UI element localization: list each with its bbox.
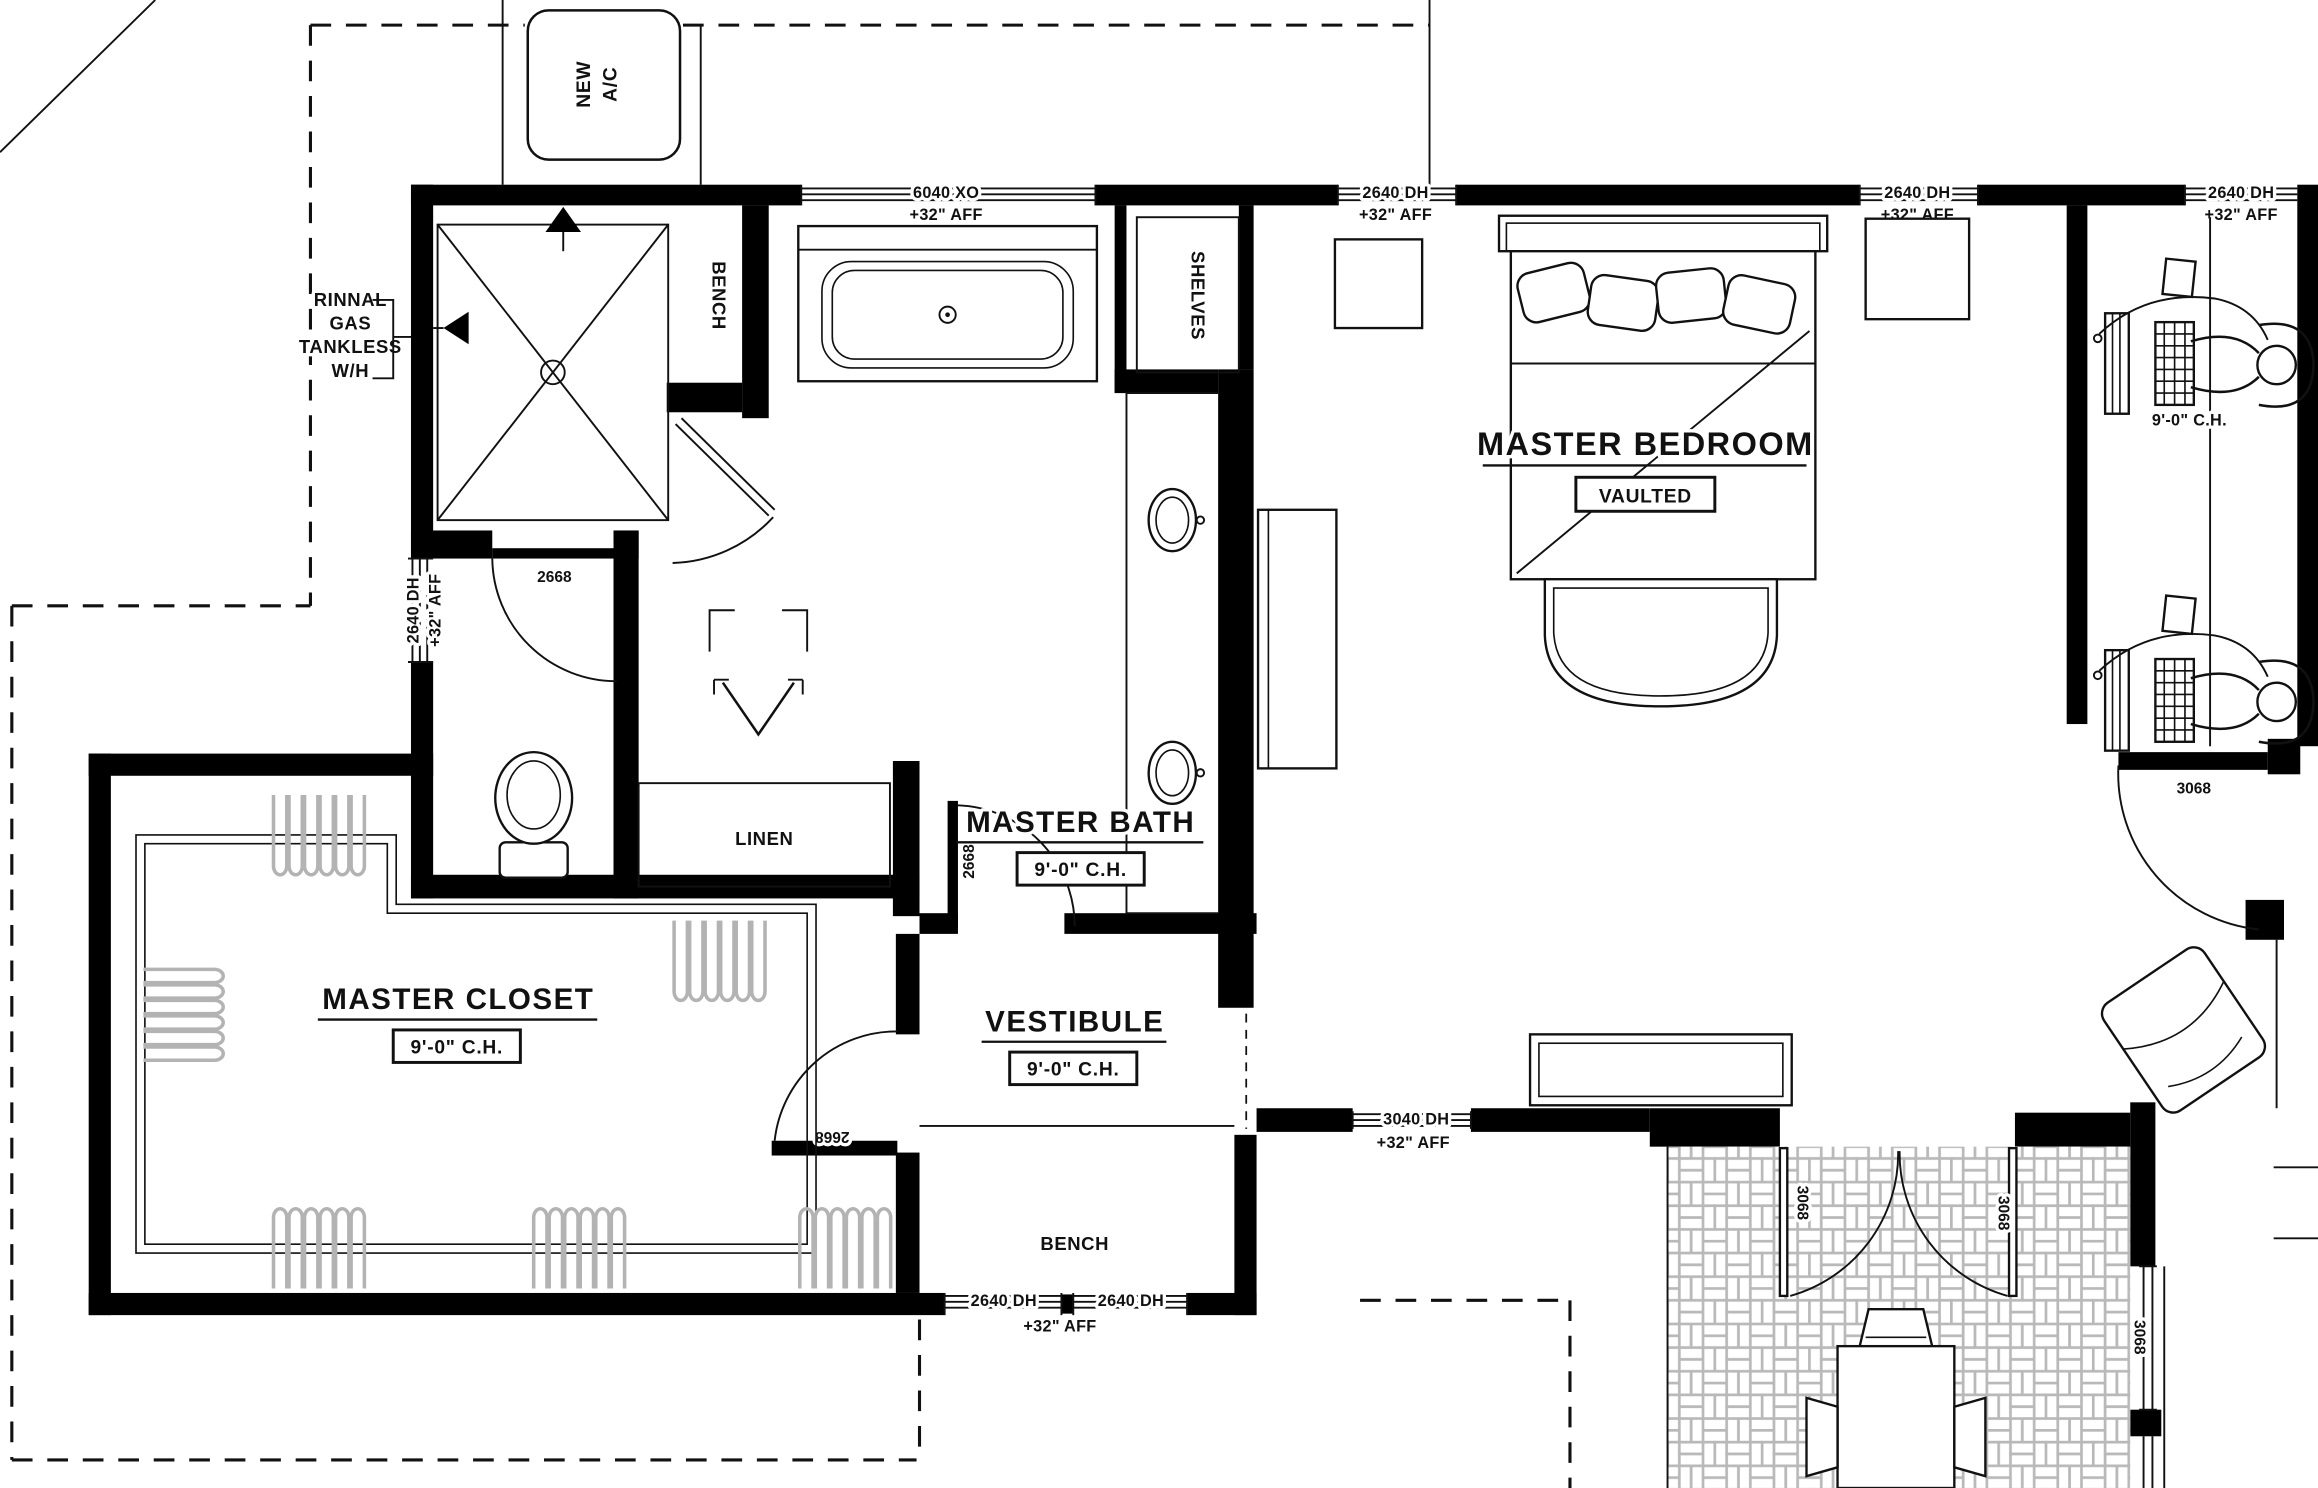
water-heater-line3: TANKLESS (299, 336, 402, 357)
water-heater-callout: RINNAL GAS TANKLESS W/H (299, 289, 414, 381)
patio-door-label: 3068 (1794, 1186, 1811, 1221)
window-2640-aff-label: +32" AFF (427, 574, 445, 647)
ac-unit: NEW A/C (528, 10, 680, 159)
window-2640-top-3: 2640 DH +32" AFF (2185, 184, 2297, 224)
window-2640-aff-label: +32" AFF (2205, 206, 2278, 224)
hanging-clothes (674, 921, 765, 1001)
ac-label-line2: A/C (600, 67, 621, 102)
window-2640-size-label: 2640 DH (1362, 184, 1428, 202)
bathtub (798, 226, 1097, 381)
room-title-master-closet: MASTER CLOSET (322, 983, 594, 1016)
window-6040-xo: 6040 XO +32" AFF (801, 184, 1095, 224)
dresser (1258, 510, 1336, 769)
closet-door-label: 2668 (815, 1128, 850, 1145)
window-3040-bedroom: 3040 DH +32" AFF (1353, 1110, 1471, 1152)
bed (1499, 216, 1827, 580)
window-2640-size-label: 2640 DH (404, 577, 422, 643)
office-door-label: 3068 (2177, 781, 2212, 798)
toilet (495, 752, 572, 878)
room-note-vaulted: VAULTED (1599, 486, 1692, 507)
shelves-label: SHELVES (1188, 251, 1209, 340)
office-nook: 9'-0" C.H. (2094, 217, 2314, 750)
window-6040-size-label: 6040 XO (913, 184, 979, 202)
hanging-clothes (273, 795, 364, 875)
window-3040-aff-label: +32" AFF (1377, 1134, 1450, 1152)
nightstand-right (1866, 219, 1969, 319)
window-6040-aff-label: +32" AFF (910, 206, 983, 224)
room-title-vestibule: VESTIBULE (985, 1005, 1164, 1038)
patio-side-door-label: 3068 (2131, 1320, 2148, 1355)
window-2640-size-label: 2640 DH (2208, 184, 2274, 202)
vestibule-door-label: 2668 (961, 844, 978, 879)
ac-label-line1: NEW (574, 61, 595, 108)
shower-bench-label: BENCH (709, 261, 730, 330)
window-2640-size-label: 2640 DH (1884, 184, 1950, 202)
workstation-1 (2094, 259, 2314, 414)
window-2640-aff-label: +32" AFF (1023, 1317, 1096, 1335)
wc-door-label: 2668 (537, 569, 572, 586)
closet-door: 2668 (772, 1031, 898, 1155)
window-2640-left: 2640 DH +32" AFF (404, 559, 444, 662)
patio: 3068 3068 3068 3068 (1668, 1147, 2318, 1488)
linen-label: LINEN (735, 828, 793, 849)
bath-ceiling-marks (710, 610, 808, 734)
wc-door: 2668 (492, 548, 616, 681)
window-3040-size-label: 3040 DH (1383, 1110, 1449, 1128)
nightstand-left (1335, 239, 1422, 328)
water-heater-line4: W/H (332, 360, 370, 381)
hanging-clothes (143, 969, 223, 1060)
media-console (1530, 1034, 1792, 1105)
lounge-chair (2097, 942, 2270, 1118)
hanging-clothes (534, 1209, 625, 1289)
room-title-master-bath: MASTER BATH (966, 806, 1195, 839)
linen-cabinet: LINEN (639, 783, 890, 886)
workstation-2 (2094, 596, 2314, 751)
water-heater-line2: GAS (329, 313, 371, 334)
patio-door-label: 3068 (1995, 1196, 2012, 1231)
window-2640-size-label: 2640 DH (971, 1292, 1037, 1310)
office-ceiling-label: 9'-0" C.H. (2152, 412, 2227, 430)
foot-bench (1545, 579, 1777, 706)
ceiling-label-master-bath: 9'-0" C.H. (1034, 860, 1127, 881)
hanging-clothes (273, 1209, 364, 1289)
ceiling-label-master-closet: 9'-0" C.H. (411, 1038, 504, 1059)
shelves: SHELVES (1137, 217, 1239, 372)
room-title-master-bedroom: MASTER BEDROOM (1477, 426, 1814, 462)
window-2640-size-label: 2640 DH (1098, 1292, 1164, 1310)
patio-side-door: 3068 3068 (2131, 1266, 2165, 1488)
office-door: 3068 (2118, 752, 2268, 929)
window-2640-top-1: 2640 DH +32" AFF (1338, 184, 1456, 224)
entry-bench-label: BENCH (1040, 1233, 1109, 1254)
floor-plan: NEW A/C RINNAL GAS TANKLESS W/H (0, 0, 2318, 1488)
ceiling-label-vestibule: 9'-0" C.H. (1027, 1060, 1120, 1081)
window-2640-aff-label: +32" AFF (1359, 206, 1432, 224)
hanging-clothes (800, 1209, 891, 1289)
